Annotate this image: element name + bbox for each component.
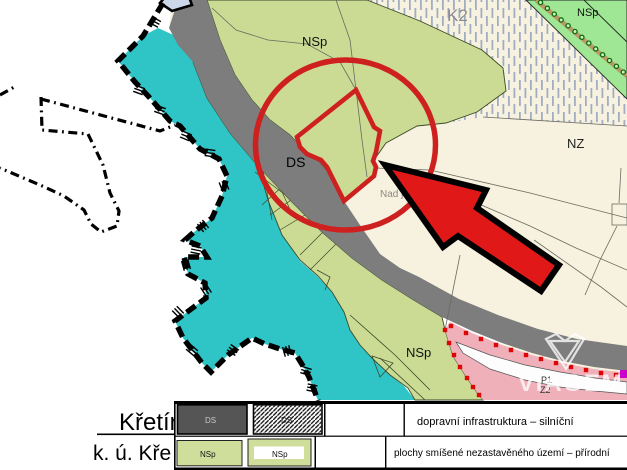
svg-text:DS: DS <box>281 416 292 425</box>
svg-text:NSp: NSp <box>302 34 327 49</box>
svg-text:k. ú. Kře: k. ú. Kře <box>93 442 171 465</box>
svg-text:NSp: NSp <box>272 450 288 459</box>
svg-text:NSp: NSp <box>406 345 431 360</box>
svg-text:K2: K2 <box>447 6 468 25</box>
svg-text:plochy smíšené nezastavěného ú: plochy smíšené nezastavěného území – pří… <box>394 448 610 459</box>
svg-text:Křetín: Křetín <box>119 409 183 436</box>
svg-text:NSp: NSp <box>200 450 216 459</box>
svg-text:VIAGEM: VIAGEM <box>518 370 623 397</box>
svg-text:DS: DS <box>286 154 305 170</box>
svg-text:dopravní infrastruktura – siln: dopravní infrastruktura – silníční <box>417 416 574 428</box>
svg-text:NSp: NSp <box>577 7 598 19</box>
svg-text:NZ: NZ <box>567 136 584 151</box>
svg-text:DS: DS <box>205 416 216 425</box>
